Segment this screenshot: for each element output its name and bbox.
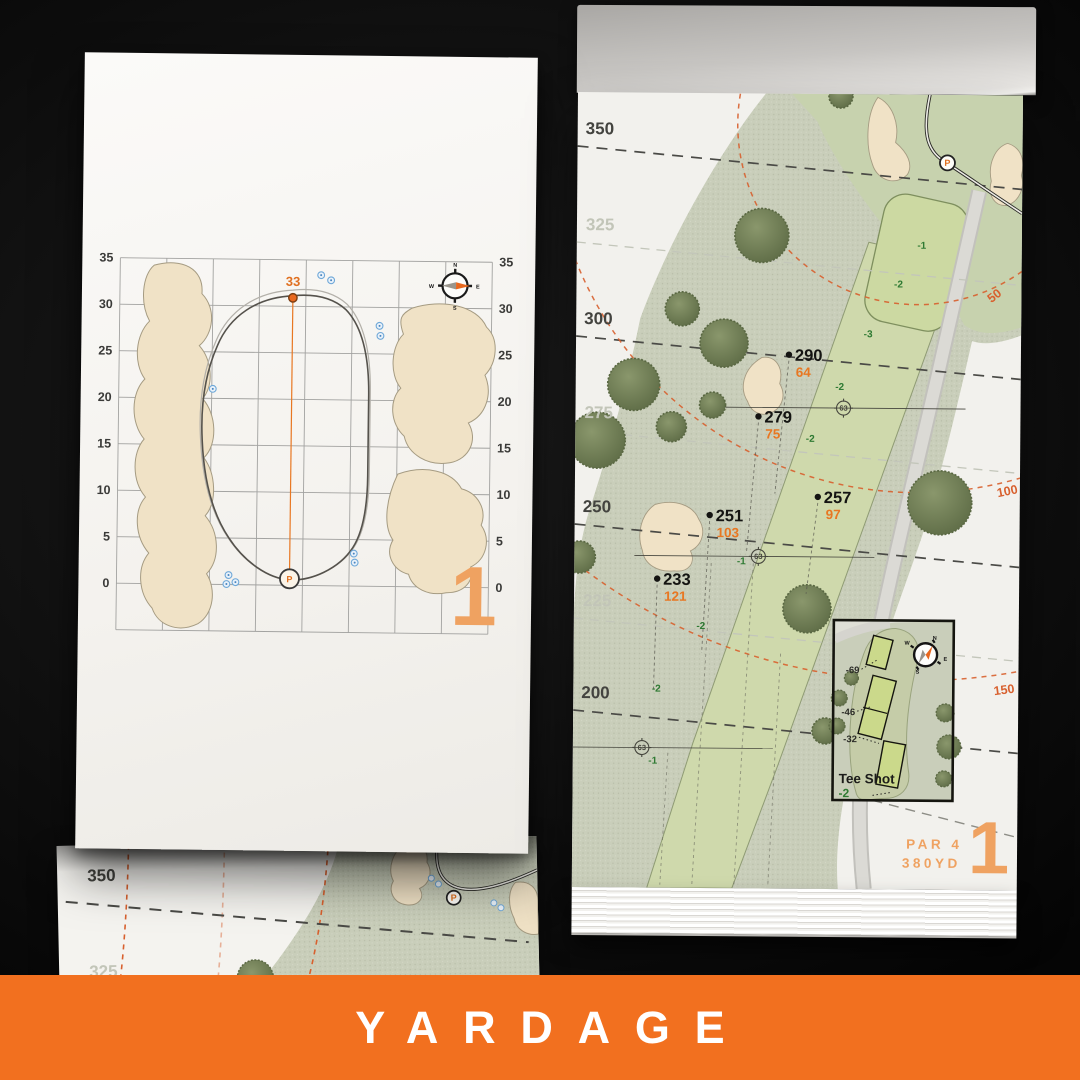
compass-w: W — [429, 284, 435, 290]
compass-e: E — [476, 285, 480, 291]
elevation-label: -2 — [806, 434, 815, 445]
sprinkler-markers — [207, 270, 385, 589]
compass-s: S — [453, 306, 457, 312]
par-label: PAR 4 — [906, 837, 962, 852]
pin-symbol: P — [944, 158, 950, 168]
yardage-line-label: 325 — [586, 215, 615, 234]
carry-distance: 233 — [663, 571, 691, 589]
tick-label: 0 — [102, 576, 109, 590]
pin-marker: P — [940, 155, 955, 170]
tree — [937, 735, 961, 759]
total-distance-label: 380YD — [902, 856, 961, 871]
carry-distance: 279 — [764, 408, 792, 426]
green-outline — [198, 288, 371, 581]
tee-shot-title: Tee Shot — [839, 771, 896, 786]
carry-distance: 257 — [824, 489, 852, 507]
tree — [936, 704, 954, 722]
carry-distance: 251 — [716, 507, 744, 525]
tick-label: 15 — [97, 436, 111, 450]
pin-symbol: P — [286, 574, 292, 584]
tick-label: 20 — [498, 395, 512, 409]
elevation-label: -3 — [864, 329, 873, 340]
front-distance-label: 33 — [286, 274, 301, 289]
tree — [665, 292, 699, 326]
flipped-page-back — [577, 5, 1036, 95]
point-dot — [786, 351, 792, 357]
tree — [700, 319, 748, 367]
tree — [699, 392, 725, 418]
tick-label: 20 — [98, 390, 112, 404]
compass-n: N — [453, 263, 457, 269]
pin-symbol: P — [451, 893, 457, 903]
centre-line — [289, 298, 292, 579]
bunker — [131, 262, 220, 628]
elevation-label: -2 — [696, 621, 705, 632]
hole-map-page: P 63 63 63 350 325 300 275 250 225 200 5… — [572, 92, 1023, 890]
sprinkler-number: 63 — [754, 552, 762, 561]
page-stack-edge — [571, 887, 1016, 938]
compass-s: S — [916, 670, 920, 676]
pin-marker: P — [447, 891, 461, 905]
sprinkler-number: 63 — [839, 404, 847, 413]
hole-number: 1 — [450, 549, 498, 644]
axis-ticks-left: 35 30 25 20 15 10 5 0 — [95, 250, 113, 590]
green-detail-map: 35 30 25 20 15 10 5 0 35 30 25 20 15 10 … — [75, 52, 538, 853]
front-distance: 75 — [765, 426, 781, 441]
carry-distance: 290 — [795, 347, 823, 365]
compass-n: N — [933, 636, 937, 642]
arc-label: 100 — [996, 482, 1019, 500]
yardage-banner: YARDAGE — [0, 975, 1080, 1080]
tick-label: 30 — [499, 302, 513, 316]
hole-map-book: P 63 63 63 350 325 300 275 250 225 200 5… — [571, 92, 1023, 938]
sprinkler-number: 63 — [638, 743, 646, 752]
tee-distance: -46 — [841, 707, 855, 718]
yardage-line-label: 200 — [581, 683, 610, 702]
yardage-line-label: 275 — [584, 403, 613, 422]
yardage-line-label: 300 — [584, 309, 613, 328]
point-dot — [654, 575, 660, 581]
tick-label: 25 — [98, 343, 112, 357]
point-dot — [755, 413, 761, 419]
arc-label: 150 — [993, 682, 1016, 699]
tree — [608, 358, 660, 410]
tree — [908, 471, 973, 536]
point-dot — [815, 494, 821, 500]
compass-w: W — [904, 641, 910, 647]
elevation-label: -2 — [894, 279, 903, 290]
yardage-line-label: 225 — [583, 591, 612, 610]
tee-shot-inset: -69 -46 -32 Tee Shot -2 N E S W — [828, 620, 961, 801]
tick-label: 10 — [496, 488, 510, 502]
tree — [936, 771, 952, 787]
tick-label: 30 — [99, 297, 113, 311]
front-distance: 121 — [664, 589, 687, 604]
tick-label: 35 — [99, 250, 113, 264]
tee-distance: -69 — [846, 665, 860, 676]
tick-label: 5 — [496, 534, 503, 548]
banner-title: YARDAGE — [331, 1002, 750, 1054]
axis-ticks-right: 35 30 25 20 15 10 5 0 — [495, 255, 513, 595]
bunker — [392, 303, 496, 464]
hole-number: 1 — [968, 806, 1010, 889]
compass-e: E — [944, 657, 948, 663]
pin-marker: P — [280, 569, 299, 588]
point-dot — [706, 512, 712, 518]
tee-shot-elevation: -2 — [838, 786, 849, 800]
tree — [656, 412, 686, 442]
yardage-line-label: 350 — [586, 119, 615, 138]
elevation-label: -2 — [652, 684, 661, 695]
tick-label: 5 — [103, 530, 110, 544]
elevation-label: -1 — [917, 241, 926, 252]
tree — [829, 718, 845, 734]
hole-map: P 63 63 63 350 325 300 275 250 225 200 5… — [572, 92, 1023, 890]
tick-label: 35 — [499, 255, 513, 269]
tee-distance: -32 — [843, 734, 857, 745]
front-distance: 64 — [796, 365, 812, 380]
front-distance: 103 — [716, 525, 739, 540]
tree — [783, 585, 831, 633]
yardage-line-label: 250 — [583, 497, 612, 516]
green-detail-page: 35 30 25 20 15 10 5 0 35 30 25 20 15 10 … — [75, 52, 538, 853]
elevation-label: -1 — [648, 756, 657, 767]
front-marker-dot — [289, 294, 298, 303]
front-distance: 97 — [826, 507, 841, 522]
tick-label: 25 — [498, 348, 512, 362]
next-hole-page: P 350 325 — [57, 836, 540, 988]
tick-label: 15 — [497, 441, 511, 455]
tree — [735, 208, 789, 262]
tick-label: 10 — [97, 483, 111, 497]
elevation-label: -1 — [737, 556, 746, 567]
elevation-label: -2 — [835, 382, 844, 393]
